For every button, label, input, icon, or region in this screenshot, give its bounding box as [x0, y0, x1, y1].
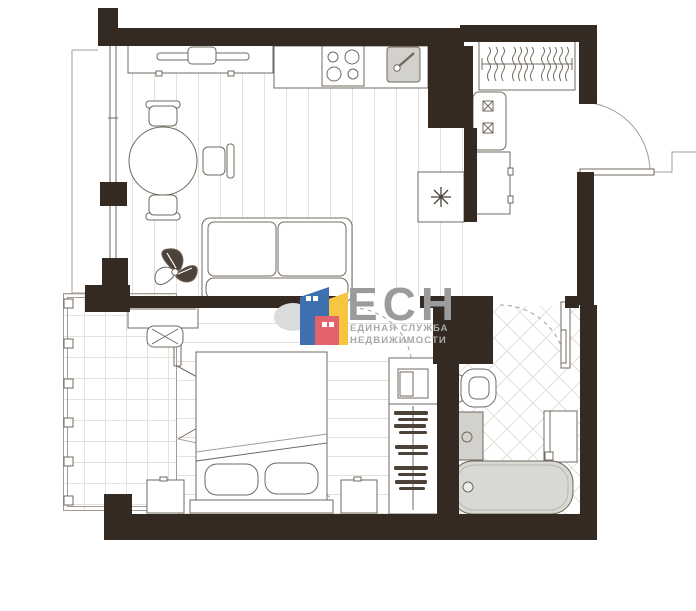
hall-cabinet	[474, 152, 513, 214]
tv-console-foot	[156, 71, 162, 76]
wall-left-pier	[100, 182, 127, 206]
landing-outline	[654, 152, 696, 172]
snowflake-icon	[431, 187, 451, 207]
entry-door	[580, 102, 696, 175]
wardrobe-with-hangers	[479, 36, 575, 90]
pillow	[205, 464, 258, 495]
tv-console-foot	[228, 71, 234, 76]
stove	[322, 46, 364, 86]
wall-bedroom-bathroom	[437, 360, 459, 515]
bath-drain	[463, 482, 473, 492]
wall-top-right	[460, 25, 597, 42]
wall-right-upper	[579, 40, 597, 104]
refrigerator	[418, 172, 464, 222]
dining-table	[129, 127, 197, 195]
double-bed	[190, 352, 333, 513]
entry-door-arc	[580, 102, 650, 172]
watermark-tagline-2: НЕДВИЖИМОСТИ	[350, 335, 447, 346]
wall-bottom-left-step	[104, 494, 132, 518]
wardrobe-column	[389, 358, 438, 514]
dining-chair	[203, 144, 234, 178]
wall-top	[98, 28, 464, 46]
wall-right-lower	[580, 305, 597, 538]
wall-bath-door-tab	[565, 296, 579, 308]
dining-chair	[146, 101, 180, 126]
sofa	[202, 218, 352, 302]
stool	[147, 326, 183, 347]
nightstand-left	[147, 477, 184, 513]
watermark-tagline-1: ЕДИНАЯ СЛУЖБА	[350, 323, 449, 334]
kitchen-sink	[387, 47, 420, 82]
floor-plan-image: ЕСН ЕДИНАЯ СЛУЖБА НЕДВИЖИМОСТИ	[0, 0, 696, 611]
hallway	[473, 36, 575, 214]
watermark-brand: ЕСН	[347, 281, 459, 327]
wall-bottom	[104, 514, 597, 540]
wall-kitchen-hall	[464, 128, 477, 222]
logo-building-red	[315, 316, 339, 345]
nightstand-right	[341, 477, 377, 513]
left-window	[72, 46, 118, 293]
shoe-cabinet	[473, 92, 506, 150]
wall-kitchen-hall-upper	[428, 46, 473, 128]
dining-chair	[146, 195, 180, 220]
blanket	[196, 352, 327, 461]
wall-right-middle	[577, 172, 594, 305]
bath-cabinet	[544, 411, 577, 462]
pillow	[265, 463, 318, 494]
towel-rail	[561, 330, 566, 363]
bathtub	[441, 461, 573, 514]
headboard	[190, 500, 333, 513]
